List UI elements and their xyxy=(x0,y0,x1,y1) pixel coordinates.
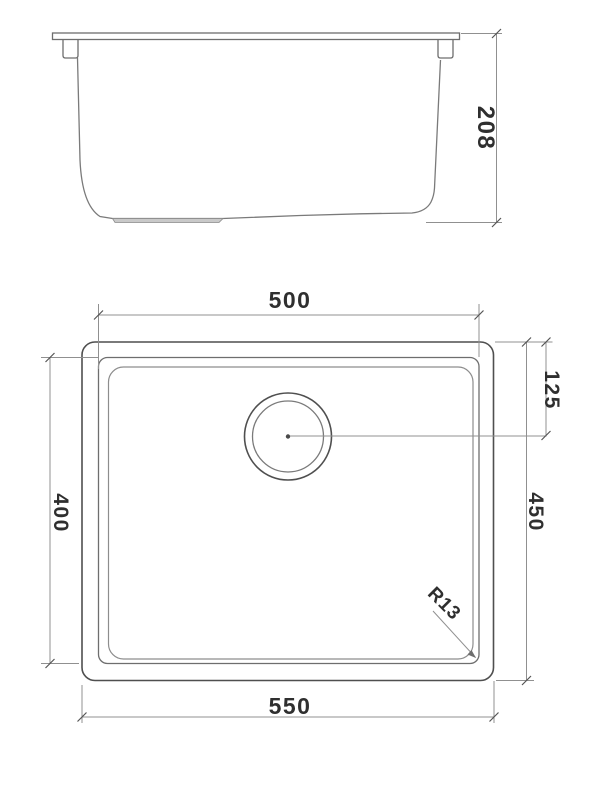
sink-technical-drawing: 500 208 125 450 400 550 R13 xyxy=(0,0,606,800)
bowl-body-outline xyxy=(78,58,441,219)
dim-label-side-height: 208 xyxy=(471,93,497,163)
radius-leader-arrow xyxy=(468,650,477,658)
drawing-svg xyxy=(0,0,606,800)
dim-label-drain-offset: 125 xyxy=(540,360,562,420)
bowl-top-rect xyxy=(99,358,480,664)
dim-label-overall-depth: 450 xyxy=(524,482,546,542)
rim-profile xyxy=(53,33,460,40)
mounting-clip-right xyxy=(438,40,453,58)
dim-bowl-width-500 xyxy=(94,304,484,369)
bowl-bottom-rect xyxy=(109,367,474,659)
dim-label-bowl-width: 500 xyxy=(259,289,321,312)
drain-boss xyxy=(113,219,224,223)
dim-label-bowl-depth: 400 xyxy=(49,483,71,543)
side-elevation-view xyxy=(53,29,503,227)
mounting-clip-left xyxy=(63,40,78,58)
drain-center-dot xyxy=(286,434,290,438)
dim-label-overall-width: 550 xyxy=(258,695,322,718)
plan-view xyxy=(41,304,553,723)
